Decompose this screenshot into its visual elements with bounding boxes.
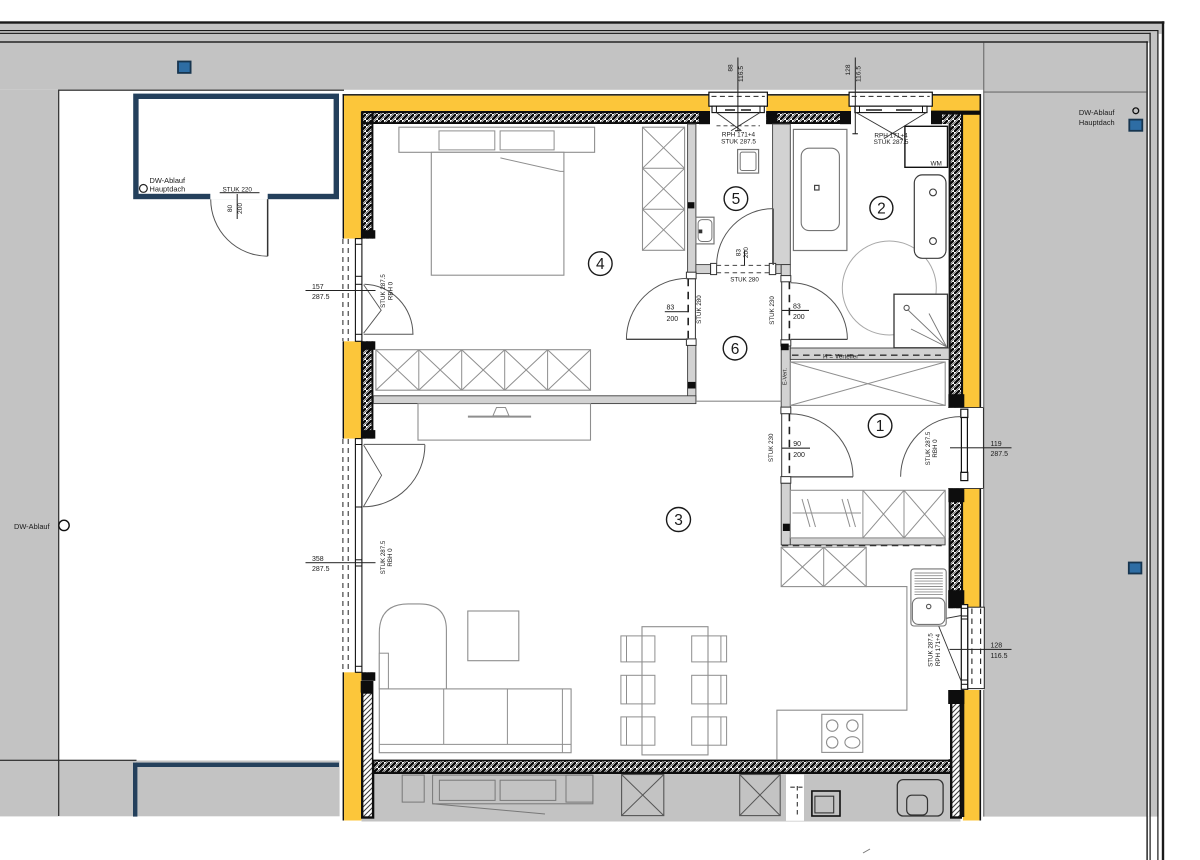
svg-text:119: 119 (991, 441, 1002, 448)
svg-text:STUK 230: STUK 230 (768, 433, 775, 462)
svg-text:116.5: 116.5 (855, 66, 862, 82)
svg-text:200: 200 (237, 203, 244, 214)
svg-text:RBH 0: RBH 0 (388, 281, 395, 300)
svg-text:E-Vert.: E-Vert. (783, 368, 789, 386)
svg-text:83: 83 (667, 305, 675, 312)
svg-text:1: 1 (876, 418, 885, 435)
svg-text:3: 3 (674, 512, 683, 529)
svg-text:83: 83 (735, 249, 742, 257)
svg-text:80: 80 (227, 205, 234, 213)
svg-text:STUK 287.5: STUK 287.5 (874, 139, 909, 146)
svg-text:5: 5 (732, 191, 741, 208)
svg-text:6: 6 (731, 341, 740, 358)
svg-text:200: 200 (667, 316, 679, 323)
svg-text:DW-Ablauf: DW-Ablauf (1079, 108, 1116, 117)
svg-text:4: 4 (596, 256, 605, 273)
svg-text:200: 200 (793, 452, 805, 459)
svg-text:STUK 287.5: STUK 287.5 (380, 540, 387, 574)
svg-text:83: 83 (793, 304, 801, 311)
svg-text:88: 88 (728, 64, 735, 72)
svg-text:WM: WM (931, 161, 942, 168)
svg-text:H = Verteiler: H = Verteiler (823, 353, 859, 360)
svg-text:287.5: 287.5 (991, 451, 1009, 458)
svg-text:RPH 171+4: RPH 171+4 (935, 633, 942, 666)
svg-text:STUK 280: STUK 280 (696, 295, 703, 324)
svg-text:358: 358 (312, 556, 324, 563)
svg-text:STUK 280: STUK 280 (730, 277, 759, 284)
svg-text:STUK 287.5: STUK 287.5 (928, 633, 935, 667)
svg-text:STUK 287.5: STUK 287.5 (380, 274, 387, 308)
svg-text:287.5: 287.5 (312, 294, 330, 301)
svg-text:Hauptdach: Hauptdach (1079, 118, 1115, 127)
svg-text:RBH 0: RBH 0 (387, 548, 394, 567)
svg-text:200: 200 (793, 314, 805, 321)
svg-text:STUK 287.5: STUK 287.5 (721, 138, 756, 145)
svg-text:287.5: 287.5 (312, 566, 330, 573)
svg-text:200: 200 (743, 247, 750, 258)
svg-text:2: 2 (877, 200, 886, 217)
svg-text:157: 157 (312, 284, 324, 291)
svg-text:STUK 230: STUK 230 (769, 296, 776, 325)
svg-text:DW-Ablauf: DW-Ablauf (14, 522, 51, 531)
svg-text:128: 128 (991, 643, 1003, 650)
svg-text:RBH 0: RBH 0 (932, 439, 939, 458)
svg-text:90: 90 (793, 441, 801, 448)
svg-text:116.5: 116.5 (991, 653, 1008, 660)
svg-text:Hauptdach: Hauptdach (150, 184, 186, 193)
svg-text:116.5: 116.5 (738, 66, 745, 82)
svg-text:STUK 287.5: STUK 287.5 (925, 431, 932, 465)
svg-text:128: 128 (845, 64, 852, 75)
